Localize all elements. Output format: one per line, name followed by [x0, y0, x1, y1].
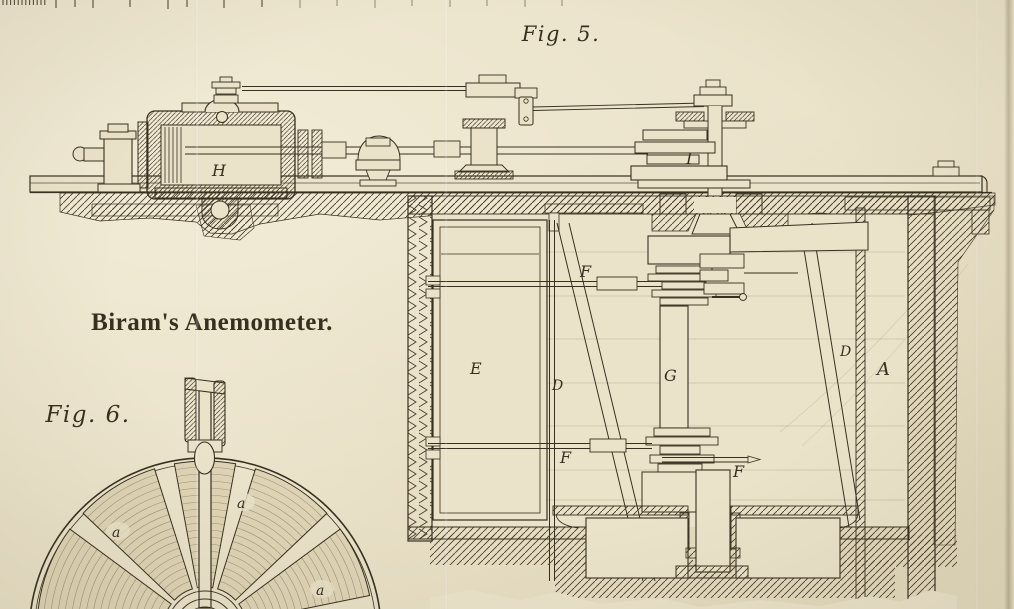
fig6-caption: Fig. 6. [44, 402, 130, 428]
plate-title: Biram's Anemometer. [91, 309, 333, 336]
label-F-lower-right: F [732, 462, 745, 481]
label-A: A [875, 359, 890, 380]
label-vane-3: a [316, 583, 324, 599]
label-F-upper: F [579, 262, 592, 281]
support-pedestal [455, 119, 513, 179]
label-D-left: D [551, 378, 563, 394]
label-G: G [664, 366, 677, 385]
fig5-caption: Fig. 5. [521, 22, 601, 46]
label-I: I [685, 149, 693, 168]
label-F-lower: F [559, 448, 572, 467]
label-vane-1: a [112, 525, 120, 541]
engraving-page: Fig. 5. Biram's Anemometer. Fig. 6. H I … [0, 0, 1014, 609]
label-H: H [211, 161, 227, 180]
scale-ticks [3, 0, 562, 9]
label-D-right: D [839, 344, 851, 360]
label-vane-2: a [237, 496, 245, 512]
anemometer-plate: Fig. 5. Biram's Anemometer. Fig. 6. H I … [0, 0, 1014, 609]
label-E: E [469, 359, 482, 378]
link-rods [242, 75, 704, 125]
